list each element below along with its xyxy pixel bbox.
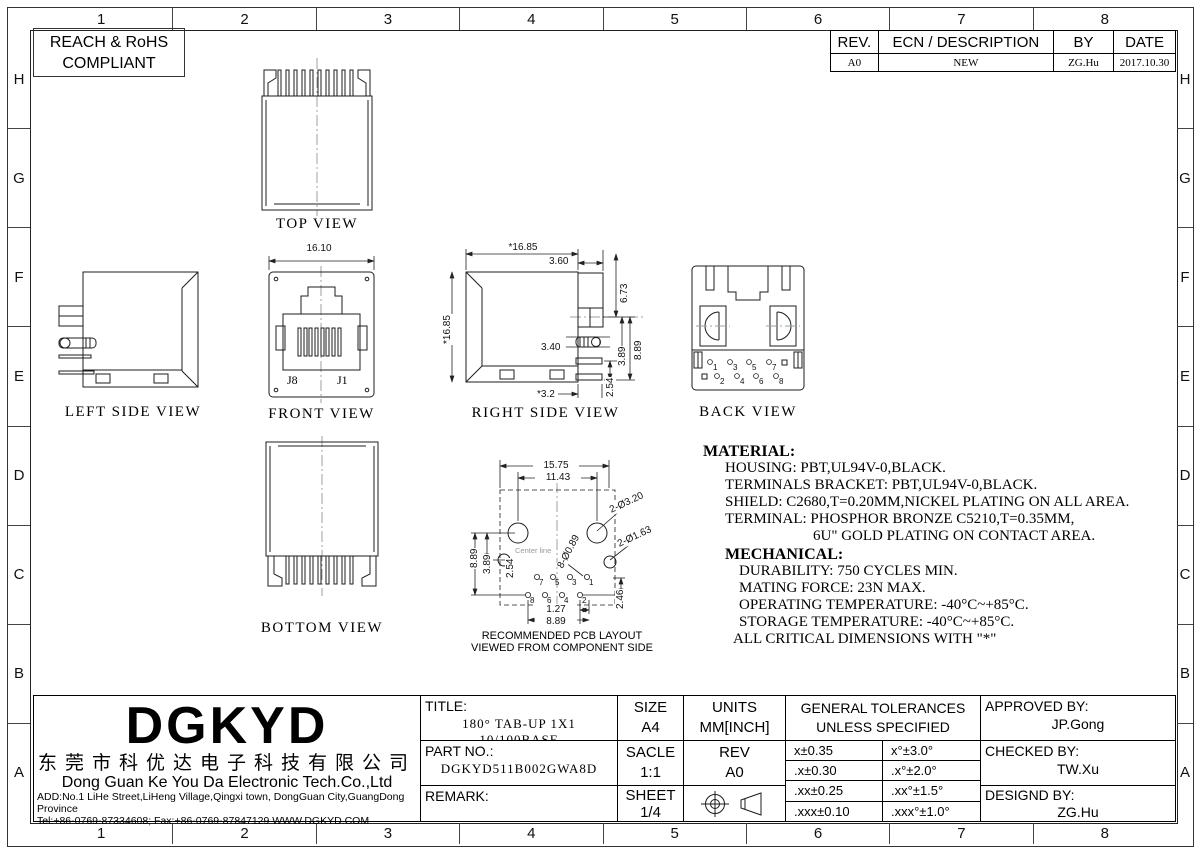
pcb-caption-1: RECOMMENDED PCB LAYOUT (453, 630, 671, 642)
remark-cell: REMARK: (420, 785, 618, 822)
view-top: TOP VIEW (252, 58, 382, 238)
mechanical-line: DURABILITY: 750 CYCLES MIN. (725, 563, 1029, 580)
pcb-pin-5: 5 (555, 579, 559, 587)
material-notes: MATERIAL: HOUSING: PBT,UL94V-0,BLACK. TE… (703, 443, 1129, 545)
zone-col: 1 (30, 8, 172, 30)
rev-cell: NEW (878, 54, 1053, 72)
units-label: UNITS (712, 698, 757, 718)
zone-col: 8 (1033, 8, 1176, 30)
zone-col: 7 (889, 8, 1032, 30)
remark-label: REMARK: (421, 786, 617, 806)
zone-row: G (8, 128, 30, 227)
zone-row: H (1177, 30, 1193, 128)
zone-col: 5 (603, 823, 746, 844)
size-cell: SIZE A4 (617, 695, 684, 741)
mechanical-line: STORAGE TEMPERATURE: -40°C~+85°C. (725, 614, 1029, 631)
zone-col: 8 (1033, 823, 1176, 844)
pcb-pin-8: 8 (530, 597, 534, 605)
pcb-dim-389: 3.89 (482, 554, 493, 575)
tol-x1deg: .x°±2.0° (882, 760, 981, 781)
zone-row: D (1177, 426, 1193, 525)
pcb-dim-889-bottom: 8.89 (535, 616, 577, 627)
mechanical-notes: MECHANICAL: DURABILITY: 750 CYCLES MIN. … (725, 546, 1029, 648)
company-logo: DGKYD (34, 698, 420, 754)
tol-x: x±0.35 (785, 740, 883, 761)
part-no-cell: PART NO.: DGKYD511B002GWA8D (420, 740, 618, 786)
zone-row: F (1177, 227, 1193, 326)
rev-cell: 2017.10.30 (1114, 54, 1176, 72)
front-view-drawing (263, 240, 380, 405)
zone-row: F (8, 227, 30, 326)
pcb-pin-2: 2 (582, 597, 586, 605)
right-dim-889: 8.89 (633, 340, 644, 361)
zone-col: 7 (889, 823, 1032, 844)
size-label: SIZE (634, 698, 667, 718)
scale-cell: SACLE 1:1 (617, 740, 684, 786)
top-view-label: TOP VIEW (252, 216, 382, 233)
units-value: MM[INCH] (700, 718, 770, 738)
view-left-side: LEFT SIDE VIEW (58, 262, 208, 422)
designed-value: ZG.Hu (981, 804, 1175, 820)
pcb-centerline-label: Center line (515, 546, 551, 555)
rev-header: REV. (831, 31, 879, 54)
zone-row: E (1177, 326, 1193, 425)
tol-x2: .xx±0.25 (785, 780, 883, 802)
bottom-view-label: BOTTOM VIEW (256, 620, 388, 637)
right-dim-32: *3.2 (536, 389, 556, 400)
company-name-en: Dong Guan Ke You Da Electronic Tech.Co.,… (34, 774, 420, 791)
zone-row: G (1177, 128, 1193, 227)
checked-value: TW.Xu (981, 761, 1175, 777)
company-address: ADD:No.1 LiHe Street,LiHeng Village,Qing… (34, 791, 420, 815)
right-side-view-label: RIGHT SIDE VIEW (438, 405, 653, 422)
material-heading: MATERIAL: (703, 443, 1129, 460)
pcb-dim-246: 2.46 (615, 589, 626, 610)
title-cell: TITLE: 180° TAB-UP 1X1 10/100BASE (420, 695, 618, 741)
part-no-value: DGKYD511B002GWA8D (421, 761, 617, 777)
revision-table: REV. ECN / DESCRIPTION BY DATE A0 NEW ZG… (830, 30, 1176, 72)
pcb-pin-3: 3 (572, 579, 576, 587)
back-view-label: BACK VIEW (686, 404, 810, 421)
rev-cell: REV A0 (683, 740, 786, 786)
zone-strip-left: H G F E D C B A (8, 30, 30, 822)
tolerances-header-1: GENERAL TOLERANCES (801, 699, 966, 718)
designed-cell: DESIGND BY: ZG.Hu (980, 785, 1176, 822)
company-cell: DGKYD 东莞市科优达电子科技有限公司 Dong Guan Ke You Da… (33, 695, 421, 822)
mechanical-line: ALL CRITICAL DIMENSIONS WITH "*" (725, 631, 1029, 648)
rev-header: ECN / DESCRIPTION (878, 31, 1053, 54)
zone-col: 3 (316, 8, 459, 30)
zone-col: 6 (746, 823, 889, 844)
zone-row: H (8, 30, 30, 128)
right-dim-389: 3.89 (617, 346, 628, 367)
bottom-view-drawing (256, 436, 388, 598)
back-pin-1: 1 (713, 364, 717, 372)
front-dim-width: 16.10 (296, 243, 342, 254)
mechanical-line: OPERATING TEMPERATURE: -40°C~+85°C. (725, 597, 1029, 614)
company-contact: Tel:+86-0769-87334608; Fax:+86-0769-8784… (34, 815, 420, 827)
right-side-view-drawing (438, 238, 648, 410)
pcb-dim-1575: 15.75 (533, 460, 579, 471)
right-dim-height: *16.85 (442, 314, 453, 345)
zone-col: 2 (172, 8, 315, 30)
rev-header: DATE (1114, 31, 1176, 54)
top-view-drawing (252, 58, 382, 218)
tol-x2deg: .xx°±1.5° (882, 780, 981, 802)
zone-strip-top: 1 2 3 4 5 6 7 8 (30, 8, 1176, 30)
view-bottom: BOTTOM VIEW (256, 436, 388, 648)
part-no-label: PART NO.: (421, 741, 617, 761)
pcb-dim-1143: 11.43 (535, 472, 581, 483)
tol-x1: .x±0.30 (785, 760, 883, 781)
right-dim-width: *16.85 (500, 242, 546, 253)
zone-col: 4 (459, 823, 602, 844)
right-dim-254: 2.54 (605, 377, 616, 398)
rev-value: A0 (725, 763, 743, 783)
drawing-sheet: 1 2 3 4 5 6 7 8 1 2 3 4 5 6 7 8 H G F E … (0, 0, 1200, 852)
approved-cell: APPROVED BY: JP.Gong (980, 695, 1176, 741)
projection-symbol-cell (683, 785, 786, 822)
right-dim-340: 3.40 (540, 342, 561, 353)
zone-row: E (8, 326, 30, 425)
view-right-side: *16.85 3.60 *16.85 6.73 8.89 3.89 2.54 3… (438, 238, 653, 433)
company-name-cn: 东莞市科优达电子科技有限公司 (34, 754, 420, 774)
zone-row: D (8, 426, 30, 525)
back-pin-4: 4 (740, 378, 744, 386)
tolerances-header-cell: GENERAL TOLERANCES UNLESS SPECIFIED (785, 695, 981, 741)
tol-xdeg: x°±3.0° (882, 740, 981, 761)
back-pin-5: 5 (752, 364, 756, 372)
rev-label: REV (719, 743, 750, 763)
front-view-label: FRONT VIEW (263, 406, 380, 423)
projection-symbol-icon (699, 790, 771, 818)
material-line: HOUSING: PBT,UL94V-0,BLACK. (703, 460, 1129, 477)
tol-x3: .xxx±0.10 (785, 801, 883, 822)
back-pin-2: 2 (720, 378, 724, 386)
left-side-view-drawing (58, 262, 208, 394)
pcb-pin-7: 7 (539, 579, 543, 587)
compliance-line1: REACH & RoHS (50, 32, 168, 53)
rev-header: BY (1053, 31, 1113, 54)
pcb-dim-127: 1.27 (535, 604, 577, 615)
sheet-cell: SHEET 1/4 (617, 785, 684, 822)
view-front: 16.10 J8 J1 FRONT VIEW (263, 240, 380, 432)
units-cell: UNITS MM[INCH] (683, 695, 786, 741)
zone-row: A (1177, 723, 1193, 822)
right-dim-673: 6.73 (619, 283, 630, 304)
front-pin-j1: J1 (337, 373, 348, 388)
zone-row: A (8, 723, 30, 822)
back-pin-6: 6 (759, 378, 763, 386)
pcb-dim-889-left: 8.89 (469, 548, 480, 569)
zone-col: 6 (746, 8, 889, 30)
approved-label: APPROVED BY: (981, 696, 1175, 716)
title-label: TITLE: (421, 696, 617, 716)
front-pin-j8: J8 (287, 373, 298, 388)
right-dim-tab: 3.60 (548, 256, 569, 267)
mechanical-heading: MECHANICAL: (725, 546, 1029, 563)
zone-row: C (8, 525, 30, 624)
pcb-caption-2: VIEWED FROM COMPONENT SIDE (453, 642, 671, 654)
scale-label: SACLE (626, 743, 675, 763)
compliance-line2: COMPLIANT (62, 53, 155, 74)
mechanical-line: MATING FORCE: 23N MAX. (725, 580, 1029, 597)
rev-cell: A0 (831, 54, 879, 72)
material-line: 6U" GOLD PLATING ON CONTACT AREA. (703, 528, 1129, 545)
zone-col: 5 (603, 8, 746, 30)
tol-x3deg: .xxx°±1.0° (882, 801, 981, 822)
back-view-drawing (686, 262, 810, 396)
approved-value: JP.Gong (981, 716, 1175, 732)
zone-row: B (8, 624, 30, 723)
compliance-box: REACH & RoHS COMPLIANT (33, 28, 185, 77)
tolerances-header-2: UNLESS SPECIFIED (816, 718, 950, 737)
zone-strip-right: H G F E D C B A (1177, 30, 1193, 822)
checked-label: CHECKED BY: (981, 741, 1175, 761)
material-line: TERMINALS BRACKET: PBT,UL94V-0,BLACK. (703, 477, 1129, 494)
zone-row: B (1177, 624, 1193, 723)
view-pcb-layout: 15.75 11.43 8.89 3.89 2.54 2.46 1.27 8.8… (453, 448, 671, 658)
pcb-pin-6: 6 (547, 597, 551, 605)
zone-row: C (1177, 525, 1193, 624)
back-pin-7: 7 (772, 364, 776, 372)
zone-col: 4 (459, 8, 602, 30)
size-value: A4 (641, 718, 659, 738)
material-line: TERMINAL: PHOSPHOR BRONZE C5210,T=0.35MM… (703, 511, 1129, 528)
back-pin-8: 8 (779, 378, 783, 386)
scale-value: 1:1 (640, 763, 661, 783)
left-side-view-label: LEFT SIDE VIEW (58, 404, 208, 421)
back-pin-3: 3 (733, 364, 737, 372)
pcb-pin-1: 1 (589, 579, 593, 587)
sheet-value: 1/4 (640, 804, 661, 821)
material-line: SHIELD: C2680,T=0.20MM,NICKEL PLATING ON… (703, 494, 1129, 511)
pcb-pin-4: 4 (564, 597, 568, 605)
rev-cell: ZG.Hu (1053, 54, 1113, 72)
sheet-label: SHEET (625, 787, 675, 804)
view-back: 1 3 5 7 2 4 6 8 BACK VIEW (686, 262, 810, 422)
designed-label: DESIGND BY: (981, 786, 1175, 804)
pcb-dim-254: 2.54 (505, 558, 516, 579)
checked-cell: CHECKED BY: TW.Xu (980, 740, 1176, 786)
